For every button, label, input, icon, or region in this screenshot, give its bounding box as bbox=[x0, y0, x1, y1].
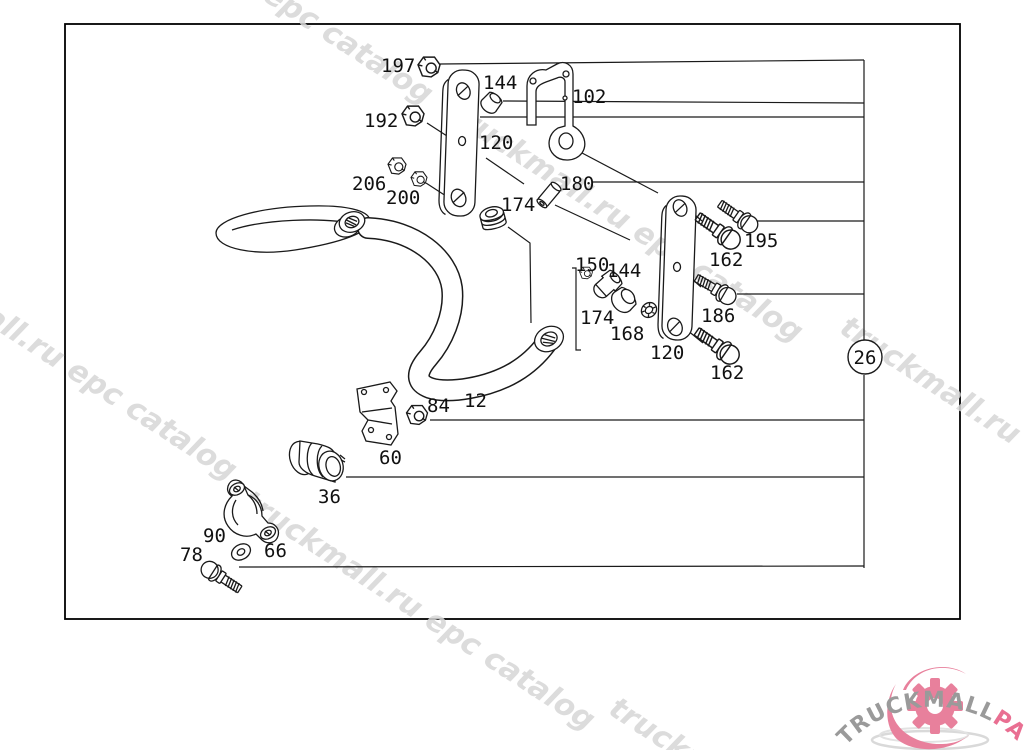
epc-diagram-page: truckmall.ru epc catalog truckmall.ru ep… bbox=[0, 0, 1024, 750]
diagram-border bbox=[65, 24, 960, 619]
bushing-36 bbox=[285, 438, 346, 483]
stabilizer-bar bbox=[216, 206, 568, 390]
bracket-plate-right-120 bbox=[657, 195, 696, 340]
part-label-192[interactable]: 192 bbox=[364, 110, 398, 132]
part-label-150[interactable]: 150 bbox=[575, 254, 609, 276]
part-label-36[interactable]: 36 bbox=[318, 486, 341, 508]
bolt-78 bbox=[198, 558, 245, 597]
bracket-60 bbox=[357, 382, 398, 445]
part-label-60[interactable]: 60 bbox=[379, 447, 402, 469]
part-label-144-lower[interactable]: 144 bbox=[607, 260, 641, 282]
part-label-195[interactable]: 195 bbox=[744, 230, 778, 252]
part-label-90[interactable]: 90 bbox=[203, 525, 226, 547]
part-label-84[interactable]: 84 bbox=[427, 395, 450, 417]
watermark-text: truckmall.ru epc catalog bbox=[0, 233, 243, 487]
part-label-78[interactable]: 78 bbox=[180, 544, 203, 566]
part-label-197[interactable]: 197 bbox=[381, 55, 415, 77]
part-label-66[interactable]: 66 bbox=[264, 540, 287, 562]
parts-diagram-canvas: truckmall.ru epc catalog truckmall.ru ep… bbox=[0, 0, 1024, 750]
nut-197 bbox=[418, 57, 440, 77]
bracket-plate-left-120 bbox=[438, 69, 479, 216]
washer-90 bbox=[229, 541, 254, 564]
part-label-186[interactable]: 186 bbox=[701, 305, 735, 327]
part-label-200[interactable]: 200 bbox=[386, 187, 420, 209]
part-label-144-upper[interactable]: 144 bbox=[483, 72, 517, 94]
watermark-text: truckmall.ru epc catalog bbox=[236, 483, 602, 737]
part-label-102[interactable]: 102 bbox=[572, 86, 606, 108]
ring-168 bbox=[638, 299, 659, 320]
part-label-206[interactable]: 206 bbox=[352, 173, 386, 195]
part-label-120-left[interactable]: 120 bbox=[479, 132, 513, 154]
part-label-168[interactable]: 168 bbox=[610, 323, 644, 345]
part-label-162-lower[interactable]: 162 bbox=[710, 362, 744, 384]
callout-circle-label[interactable]: 26 bbox=[854, 347, 877, 369]
part-label-174-upper[interactable]: 174 bbox=[501, 194, 535, 216]
nut-206 bbox=[388, 158, 406, 174]
callout-circle-26[interactable]: 26 bbox=[848, 340, 882, 374]
nut-200 bbox=[411, 172, 427, 186]
part-label-12[interactable]: 12 bbox=[464, 390, 487, 412]
part-label-120-right[interactable]: 120 bbox=[650, 342, 684, 364]
part-label-180[interactable]: 180 bbox=[560, 173, 594, 195]
nut-192 bbox=[402, 106, 424, 126]
part-label-162-upper[interactable]: 162 bbox=[709, 249, 743, 271]
nut-84 bbox=[407, 406, 428, 425]
